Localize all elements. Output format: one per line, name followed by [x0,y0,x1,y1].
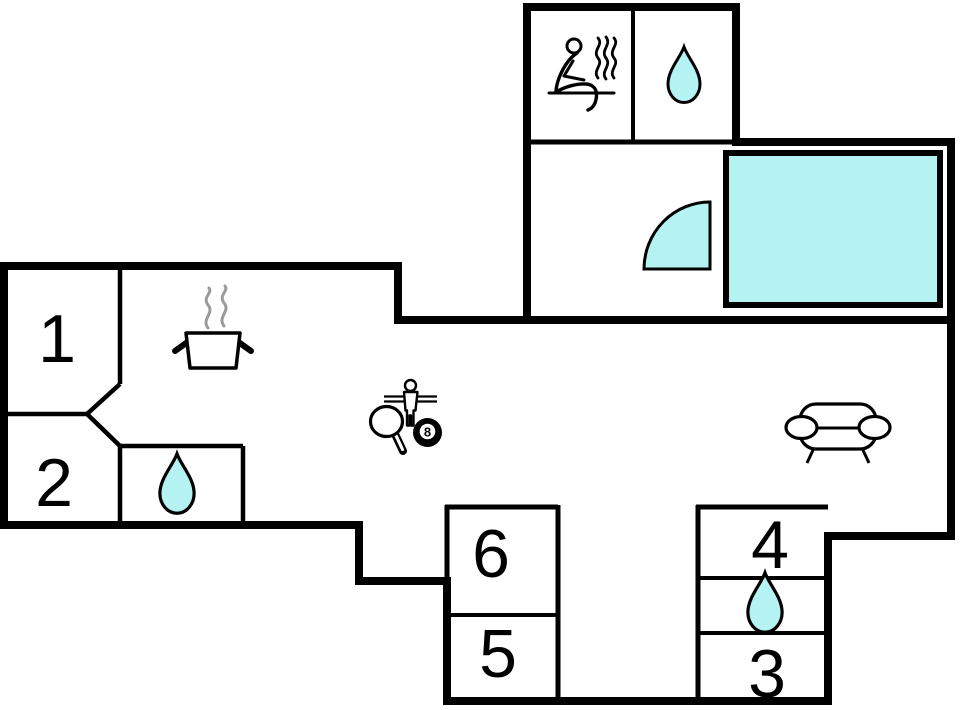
pool [726,153,940,305]
sofa-armrest-right [859,417,890,439]
floor-plan: 8 1 2 3 4 5 6 [0,0,960,710]
room-2-label: 2 [35,445,73,521]
sauna-person-head [567,39,581,53]
sofa-armrest-left [786,417,817,439]
room-4-label: 4 [751,507,789,583]
room-3-label: 3 [748,636,786,710]
pot-body [186,333,240,368]
ball-number: 8 [424,425,431,440]
building-outline [4,7,951,701]
billiard-8-ball-icon: 8 [413,418,442,447]
room-6-label: 6 [472,516,510,592]
room-1-label: 1 [38,301,76,377]
room-5-label: 5 [479,616,517,692]
